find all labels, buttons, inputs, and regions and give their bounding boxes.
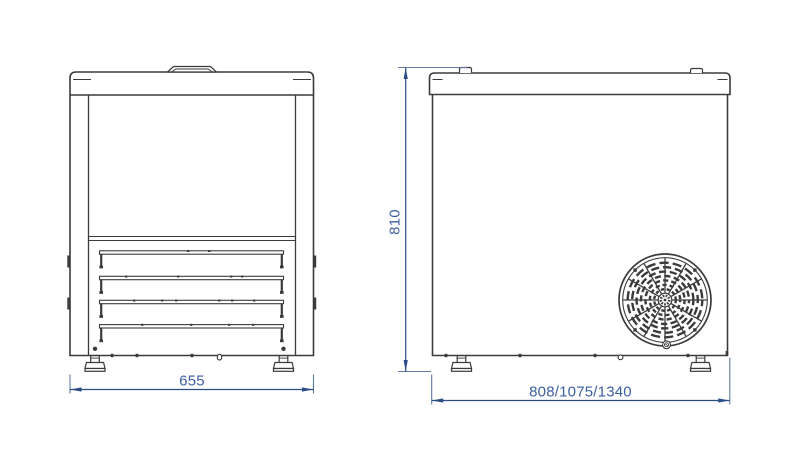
fan-grille-icon [619,254,711,349]
arrowhead-right [718,398,730,402]
arrowhead-left [70,387,82,391]
adjustable-foot [85,356,105,371]
hinge-bump-left [460,68,472,74]
dimension-side-height: 810 [387,68,467,372]
front-view [67,67,316,372]
arrowhead-down [404,360,408,372]
adjustable-foot [452,356,472,371]
adjustable-foot [274,356,294,371]
arrowhead-up [404,68,408,80]
arrowhead-left [432,398,444,402]
front-cabinet-outline [70,72,314,356]
dimension-label-depth: 808/1075/1340 [529,384,632,401]
lid-handle-icon [168,67,217,73]
hinge-bump-right [691,69,703,74]
side-lid-outline [430,73,731,95]
arrowhead-right [302,387,314,391]
dimension-side-depth: 808/1075/1340 [432,358,730,405]
technical-drawing-canvas: 655 [0,0,800,473]
side-view [430,68,731,372]
fan-screw-icon [663,341,671,349]
dimension-front-width: 655 [70,373,314,394]
dimension-label-width: 655 [179,373,205,390]
adjustable-foot [691,356,711,371]
dimension-label-height: 810 [387,209,404,235]
